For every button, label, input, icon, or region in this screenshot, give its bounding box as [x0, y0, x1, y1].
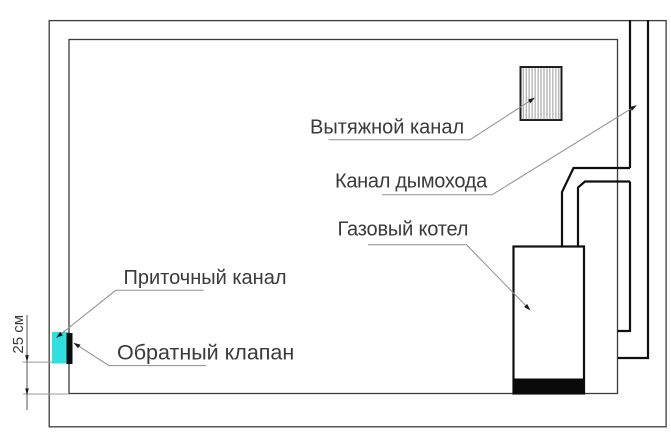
svg-text:25 см: 25 см — [10, 315, 27, 354]
svg-text:Приточный канал: Приточный канал — [124, 267, 287, 289]
svg-text:Канал дымохода: Канал дымохода — [335, 170, 488, 192]
svg-text:Обратный клапан: Обратный клапан — [117, 341, 294, 365]
svg-text:Вытяжной канал: Вытяжной канал — [310, 116, 464, 138]
svg-text:Газовый котел: Газовый котел — [338, 218, 469, 240]
